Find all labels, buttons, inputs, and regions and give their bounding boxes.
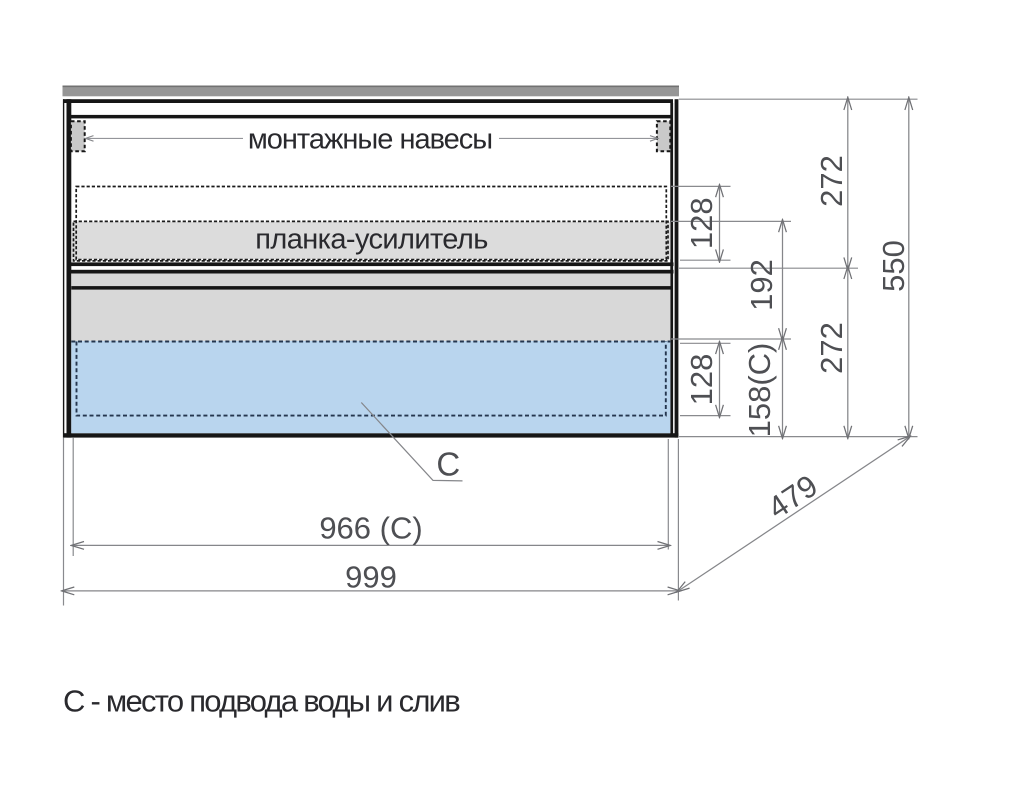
svg-text:272: 272: [814, 322, 849, 374]
svg-text:999: 999: [345, 559, 397, 594]
svg-text:С - место подвода воды и слив: С - место подвода воды и слив: [63, 683, 460, 718]
svg-text:550: 550: [876, 240, 911, 292]
svg-text:158(C): 158(C): [742, 343, 777, 438]
svg-text:272: 272: [814, 155, 849, 207]
svg-text:C: C: [436, 446, 460, 483]
svg-text:монтажные навесы: монтажные навесы: [248, 124, 492, 156]
svg-text:планка-усилитель: планка-усилитель: [255, 224, 487, 256]
svg-text:128: 128: [684, 354, 719, 406]
svg-text:966 (C): 966 (C): [319, 511, 422, 546]
svg-text:192: 192: [744, 259, 779, 311]
svg-text:128: 128: [684, 197, 719, 249]
